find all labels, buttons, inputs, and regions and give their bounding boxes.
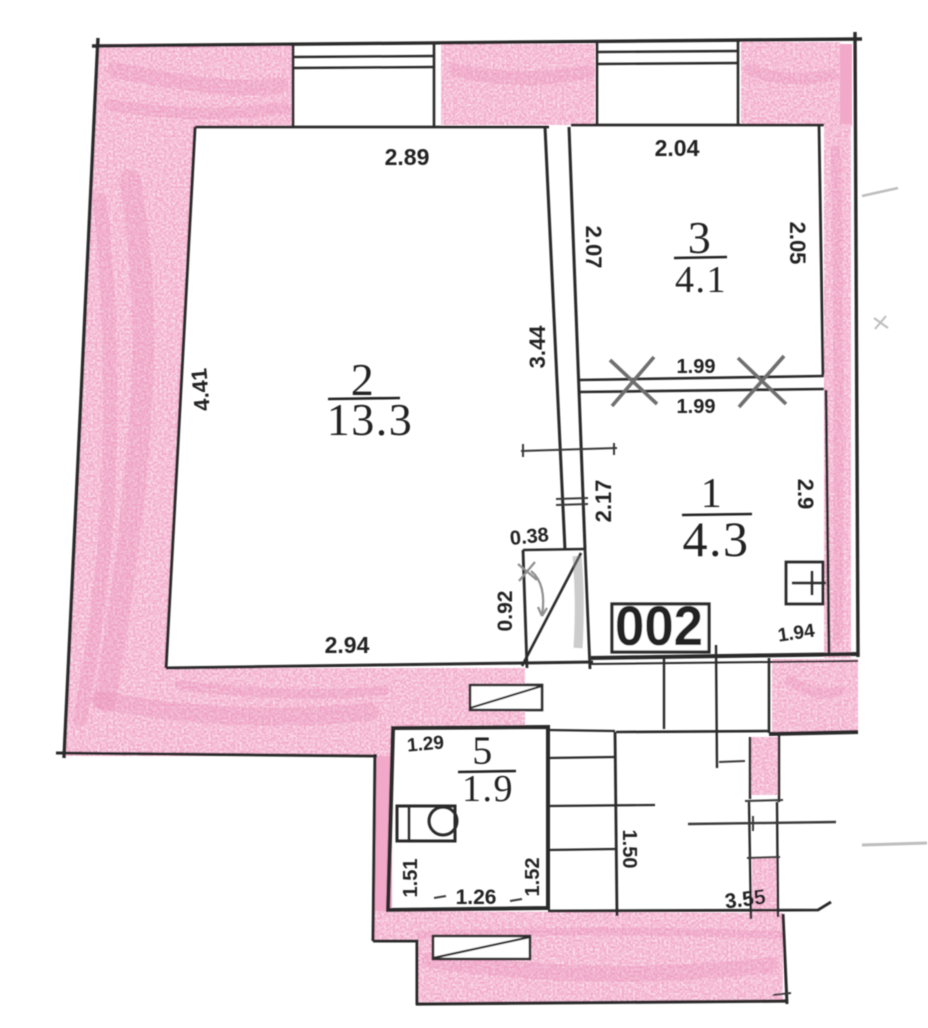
svg-text:2.07: 2.07 — [581, 226, 606, 269]
svg-text:2.89: 2.89 — [385, 144, 430, 170]
svg-text:2.94: 2.94 — [325, 632, 370, 658]
svg-text:0.92: 0.92 — [494, 591, 517, 632]
svg-text:2.04: 2.04 — [655, 135, 700, 161]
svg-text:1.26: 1.26 — [456, 886, 497, 909]
svg-text:3.44: 3.44 — [525, 325, 550, 369]
svg-text:4.3: 4.3 — [683, 511, 750, 567]
svg-text:4.41: 4.41 — [186, 367, 215, 412]
svg-text:1.51: 1.51 — [400, 859, 422, 898]
svg-text:1.52: 1.52 — [522, 858, 544, 897]
svg-text:1.99: 1.99 — [677, 396, 716, 418]
svg-text:13.3: 13.3 — [327, 394, 414, 445]
svg-text:1.9: 1.9 — [462, 768, 514, 810]
svg-text:0.38: 0.38 — [509, 524, 550, 550]
svg-text:4.1: 4.1 — [675, 259, 727, 301]
svg-text:2.9: 2.9 — [793, 479, 818, 510]
svg-text:3: 3 — [688, 212, 713, 263]
svg-text:002: 002 — [615, 594, 703, 657]
svg-text:1.29: 1.29 — [406, 732, 445, 756]
svg-text:2.05: 2.05 — [785, 222, 810, 265]
svg-text:1.99: 1.99 — [677, 356, 716, 378]
svg-text:1.50: 1.50 — [618, 830, 640, 869]
svg-text:2.17: 2.17 — [591, 480, 616, 523]
svg-text:5: 5 — [472, 728, 494, 773]
